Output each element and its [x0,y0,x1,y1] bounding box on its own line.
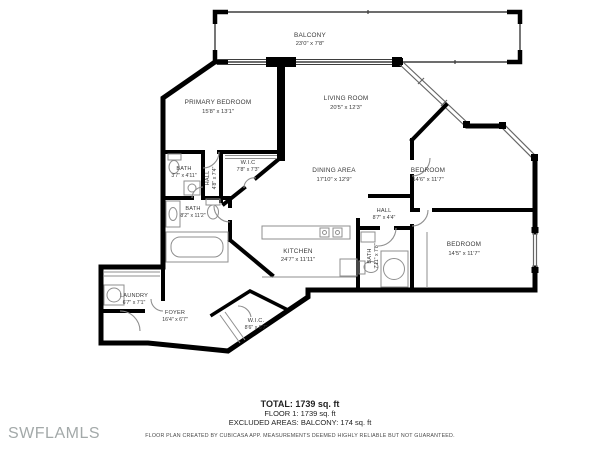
vanity [166,201,180,227]
room-dims-dining-area: 17'10" x 12'9" [316,177,351,183]
fridge [340,259,357,276]
room-dims-bedroom-1: 14'6" x 11'7" [412,177,443,183]
room-label-hall-1: HALL [205,171,211,186]
laundry-shelves [104,272,160,276]
room-label-bath-3: BATH [367,248,373,263]
bathtub-inner [171,237,223,257]
vanity [361,232,375,242]
floor-area: FLOOR 1: 1739 sq. ft [0,409,600,418]
room-label-living-room: LIVING ROOM [324,95,369,102]
room-label-bath-2: BATH [185,206,200,212]
room-dims-hall-1: 4'8" x 7'4" [212,167,218,190]
total-area: TOTAL: 1739 sq. ft [0,399,600,409]
room-dims-wic-2: 8'6" x 6'7" [245,325,268,331]
kitchen-stove [333,228,342,237]
room-dims-wic-1: 7'8" x 7'3" [237,167,260,173]
shower-drain [384,259,405,280]
closet-shelves [225,156,277,159]
room-dims-foyer: 16'4" x 6'7" [162,317,188,323]
kitchen-sink [320,228,329,237]
toilet-bowl [208,205,219,219]
room-label-bedroom-1: BEDROOM [411,167,445,174]
room-label-dining-area: DINING AREA [312,167,356,174]
closet-shelves [220,312,245,343]
toilet-tank [168,154,181,160]
balcony-outline [215,10,520,64]
sink [188,184,196,192]
room-dims-primary-bedroom: 15'8" x 13'1" [202,109,234,115]
room-label-primary-bedroom: PRIMARY BEDROOM [185,99,252,106]
balcony-corner-posts [215,12,520,62]
shower [381,251,408,287]
room-label-kitchen: KITCHEN [283,248,313,255]
room-dims-hall-2: 8'7" x 4'4" [373,215,396,221]
room-dims-bath-3: 7'11" x 7'8" [374,243,380,268]
room-label-balcony: BALCONY [294,32,326,39]
room-label-bath-1: BATH [176,166,191,172]
floor-plan-page: BALCONY 23'0" x 7'8" PRIMARY BEDROOM 15'… [0,0,600,450]
room-label-wic-2: W.I.C. [248,318,265,324]
room-dims-kitchen: 24'7" x 11'11" [281,257,315,263]
room-dims-bath-2: 8'2" x 11'2" [180,213,205,219]
watermark: SWFLAMLS [8,425,100,443]
room-dims-bedroom-2: 14'5" x 11'7" [448,251,479,257]
room-label-bedroom-2: BEDROOM [447,241,481,248]
room-dims-balcony: 23'0" x 7'8" [296,41,325,47]
room-dims-bath-1: 3'7" x 4'11" [171,173,196,179]
room-label-hall-2: HALL [377,208,392,214]
room-label-foyer: FOYER [165,310,185,316]
room-dims-laundry: 6'7" x 7'1" [123,300,146,306]
floor-plan-drawing: BALCONY 23'0" x 7'8" PRIMARY BEDROOM 15'… [0,0,600,450]
room-dims-living-room: 20'5" x 12'3" [330,105,362,111]
sink [169,208,177,221]
room-label-wic-1: W.I.C [241,160,256,166]
windows [399,61,537,269]
room-label-laundry: LAUNDRY [120,293,148,299]
